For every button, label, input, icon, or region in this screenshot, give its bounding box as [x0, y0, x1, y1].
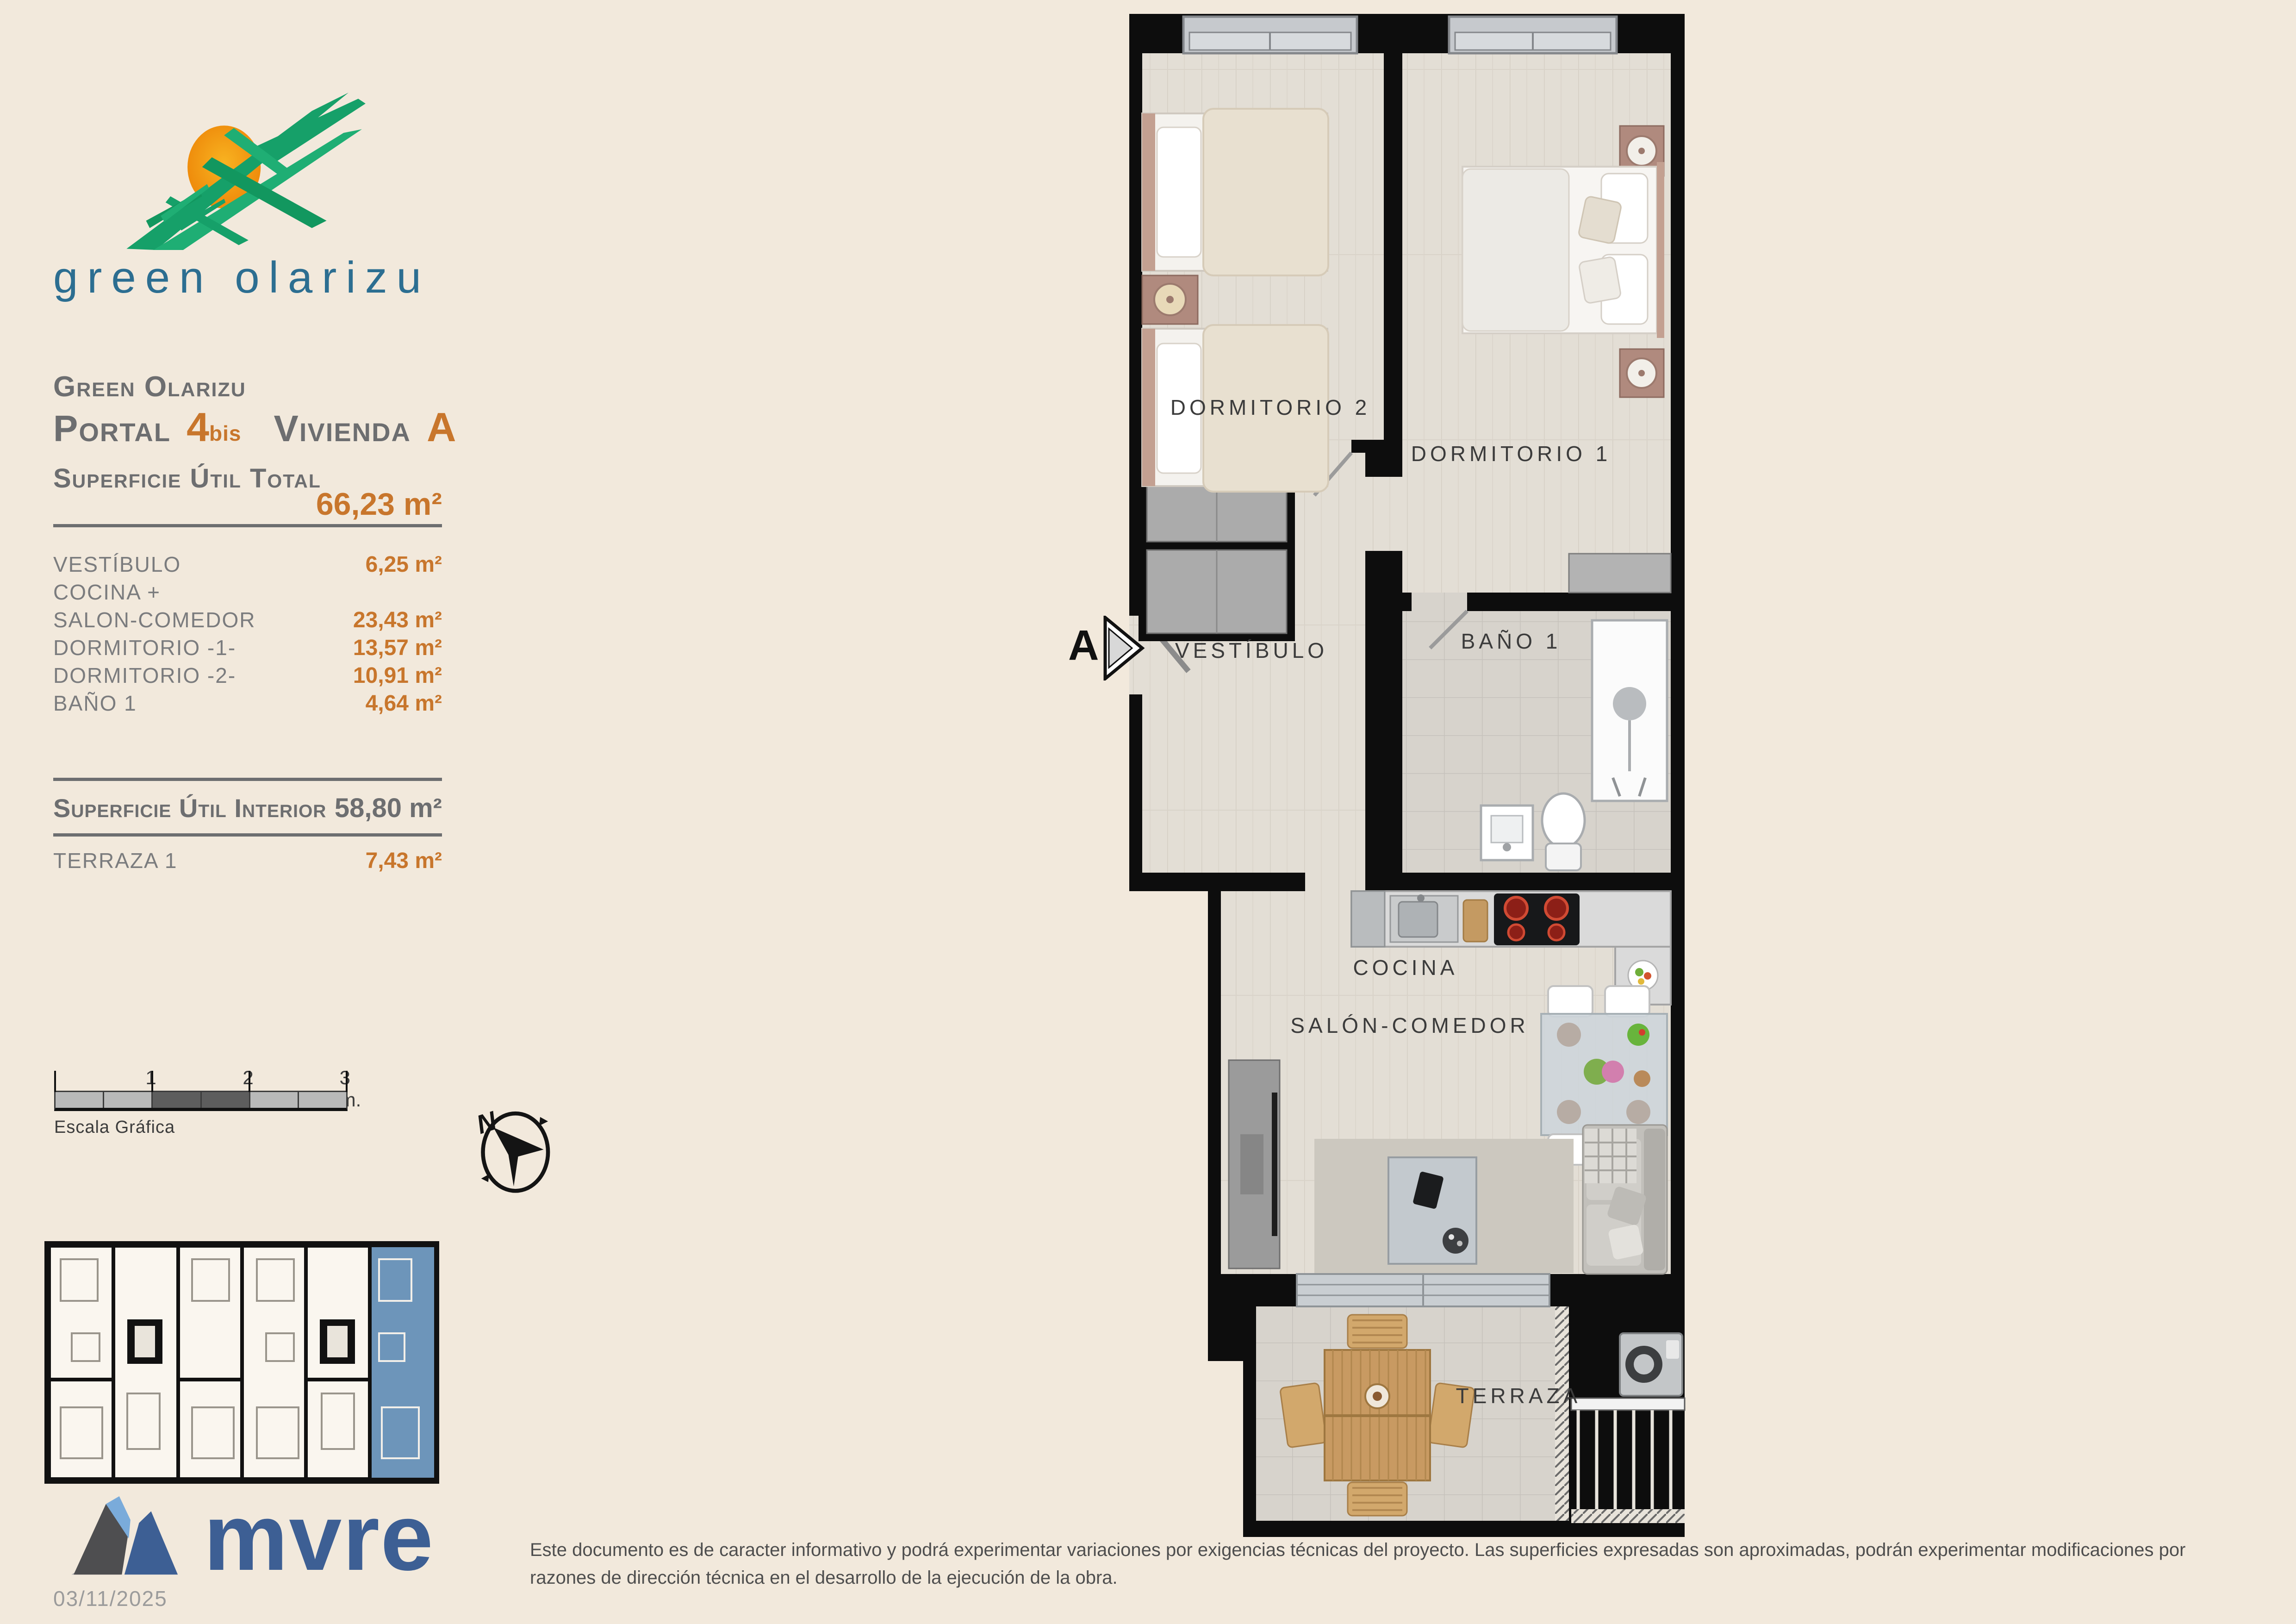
- tv-unit: [1229, 1060, 1280, 1268]
- label-dormitorio2: DORMITORIO 2: [1170, 395, 1371, 420]
- label-cocina: COCINA: [1353, 955, 1458, 980]
- room-value: 10,91 m²: [353, 663, 442, 688]
- scale-bar-numbers: 1 2 3 m.: [54, 1067, 348, 1091]
- floor-plan-drawing: [1064, 14, 1712, 1538]
- table-row: COCINA +: [53, 580, 442, 607]
- scale-tick-label: 2: [243, 1067, 253, 1089]
- room-label: SALON-COMEDOR: [53, 607, 255, 632]
- toilet: [1542, 793, 1585, 870]
- room-label: COCINA +: [53, 580, 161, 605]
- portal-number: 4: [187, 404, 209, 450]
- unit-title: Portal4bisViviendaA: [53, 404, 456, 451]
- scale-tick-label: 1: [145, 1067, 156, 1089]
- green-olarizu-logo-text: green olarizu: [53, 252, 430, 303]
- dorm1-closet: [1569, 554, 1671, 593]
- room-value: 23,43 m²: [353, 607, 442, 633]
- page: { "branding": { "logo_text": "green olar…: [0, 0, 2296, 1624]
- divider-2: [53, 778, 442, 781]
- key-plan: [44, 1241, 440, 1498]
- scale-bar: 1 2 3 m. Escala Gráfica: [54, 1067, 348, 1137]
- table-row: DORMITORIO -1- 13,57 m²: [53, 635, 442, 663]
- bed-single-1: [1142, 109, 1328, 275]
- sink: [1481, 806, 1533, 860]
- room-value: 13,57 m²: [353, 635, 442, 661]
- divider-3: [53, 833, 442, 837]
- shower: [1592, 620, 1667, 801]
- plaid-blanket: [1585, 1129, 1636, 1183]
- floor-plan: DORMITORIO 2 DORMITORIO 1 VESTÍBULO BAÑO…: [1064, 14, 1712, 1538]
- project-name: Green Olarizu: [53, 370, 246, 403]
- area-table: VESTÍBULO 6,25 m² COCINA + SALON-COMEDOR…: [53, 552, 442, 718]
- vivienda-letter: A: [427, 404, 456, 450]
- room-label: VESTÍBULO: [53, 552, 181, 577]
- terrace-value: 7,43 m²: [366, 848, 442, 874]
- nightstand: [1620, 349, 1664, 397]
- label-salon: SALÓN-COMEDOR: [1290, 1013, 1529, 1038]
- disclaimer-text: Este documento es de caracter informativ…: [530, 1536, 2233, 1592]
- date: 03/11/2025: [53, 1586, 168, 1611]
- label-dormitorio1: DORMITORIO 1: [1411, 441, 1612, 466]
- scale-bar-caption: Escala Gráfica: [54, 1118, 348, 1137]
- portal-suffix: bis: [209, 421, 241, 445]
- section-marker-arrow: [1101, 616, 1145, 681]
- surface-interior-row: Superficie Útil Interior 58,80 m²: [53, 793, 442, 824]
- portal-label: Portal: [53, 408, 171, 449]
- vivienda-label: Vivienda: [274, 408, 411, 449]
- terrace-row: TERRAZA 1 7,43 m²: [53, 848, 442, 874]
- bed-double: [1462, 162, 1664, 338]
- green-olarizu-logo-icon: [97, 69, 366, 250]
- table-row: SALON-COMEDOR 23,43 m²: [53, 607, 442, 635]
- section-marker-letter: A: [1068, 621, 1099, 670]
- window-top-right: [1449, 17, 1617, 53]
- scale-bar-strip: [54, 1091, 348, 1111]
- surface-interior-value: 58,80 m²: [335, 793, 442, 824]
- sofa: [1583, 1125, 1667, 1274]
- surface-interior-label: Superficie Útil Interior: [53, 793, 326, 823]
- room-label: DORMITORIO -2-: [53, 663, 236, 688]
- divider-1: [53, 524, 442, 527]
- room-label: DORMITORIO -1-: [53, 635, 236, 660]
- label-vestibulo: VESTÍBULO: [1175, 638, 1328, 663]
- surface-total-value: 66,23 m²: [53, 486, 442, 522]
- table-row: BAÑO 1 4,64 m²: [53, 691, 442, 718]
- nightstand: [1142, 275, 1198, 324]
- room-label: BAÑO 1: [53, 691, 137, 716]
- terrace-slider-window: [1297, 1274, 1549, 1306]
- coffee-table: [1388, 1157, 1476, 1264]
- room-value: 6,25 m²: [366, 552, 442, 577]
- mvre-logo-text: mvre: [204, 1490, 434, 1585]
- room-value: 4,64 m²: [366, 691, 442, 716]
- compass-icon: N: [470, 1098, 558, 1202]
- label-bano: BAÑO 1: [1461, 629, 1562, 654]
- window-top-left: [1183, 17, 1357, 53]
- mvre-logo-icon: [65, 1496, 194, 1576]
- table-row: DORMITORIO -2- 10,91 m²: [53, 663, 442, 691]
- label-terraza: TERRAZA: [1456, 1383, 1581, 1408]
- terrace-label: TERRAZA 1: [53, 848, 178, 873]
- table-row: VESTÍBULO 6,25 m²: [53, 552, 442, 580]
